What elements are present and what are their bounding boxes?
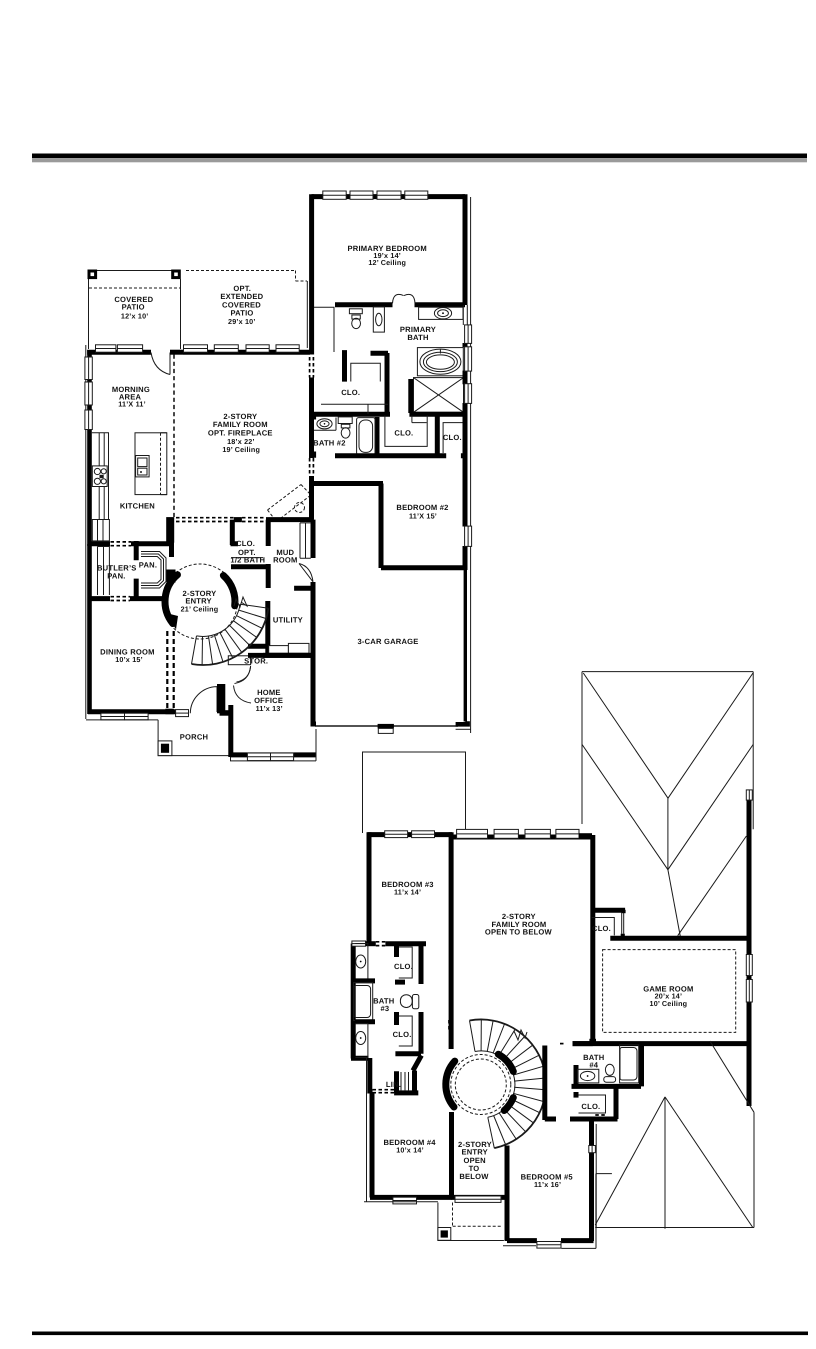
svg-text:11’x 13’: 11’x 13’: [256, 704, 283, 713]
svg-text:ROOM: ROOM: [273, 556, 297, 565]
svg-text:19’ Ceiling: 19’ Ceiling: [222, 445, 260, 454]
svg-text:CLO.: CLO.: [394, 429, 413, 438]
svg-text:10’x 15’: 10’x 15’: [115, 655, 143, 664]
svg-text:11’X 15’: 11’X 15’: [409, 512, 437, 521]
svg-text:11’x 16’: 11’x 16’: [534, 1180, 561, 1189]
svg-text:PAN.: PAN.: [139, 561, 157, 570]
svg-text:CLO.: CLO.: [393, 1030, 412, 1039]
svg-text:12’x 10’: 12’x 10’: [121, 312, 149, 321]
svg-text:PORCH: PORCH: [180, 733, 208, 742]
svg-text:21’ Ceiling: 21’ Ceiling: [181, 604, 219, 613]
svg-text:CLO.: CLO.: [236, 539, 255, 548]
svg-text:OPEN TO BELOW: OPEN TO BELOW: [485, 928, 553, 937]
svg-text:UTILITY: UTILITY: [273, 615, 303, 624]
svg-text:BELOW: BELOW: [459, 1172, 489, 1181]
svg-text:KITCHEN: KITCHEN: [120, 501, 155, 510]
svg-text:12’ Ceiling: 12’ Ceiling: [368, 258, 406, 267]
svg-text:10’x 14’: 10’x 14’: [396, 1146, 424, 1155]
svg-text:1/2 BATH: 1/2 BATH: [230, 556, 265, 565]
svg-text:3-CAR GARAGE: 3-CAR GARAGE: [357, 637, 418, 646]
svg-text:11’X 11’: 11’X 11’: [118, 400, 146, 409]
svg-text:PATIO: PATIO: [230, 308, 253, 317]
svg-text:CLO.: CLO.: [341, 388, 360, 397]
svg-text:#4: #4: [589, 1060, 598, 1069]
svg-text:CLO.: CLO.: [592, 924, 611, 933]
svg-text:BATH: BATH: [407, 333, 428, 342]
svg-text:11’x 14’: 11’x 14’: [394, 888, 421, 897]
svg-text:STOR.: STOR.: [244, 657, 268, 666]
svg-text:PATIO: PATIO: [122, 303, 145, 312]
svg-text:#3: #3: [380, 1004, 389, 1013]
svg-text:CLO.: CLO.: [394, 962, 413, 971]
svg-text:LIN.: LIN.: [386, 1080, 401, 1089]
svg-text:BATH #2: BATH #2: [313, 439, 345, 448]
svg-text:CLO.: CLO.: [443, 433, 462, 442]
svg-text:10’ Ceiling: 10’ Ceiling: [650, 999, 688, 1008]
svg-text:29’x 10’: 29’x 10’: [228, 317, 256, 326]
svg-text:PAN.: PAN.: [107, 571, 125, 580]
svg-text:CLO.: CLO.: [581, 1102, 600, 1111]
